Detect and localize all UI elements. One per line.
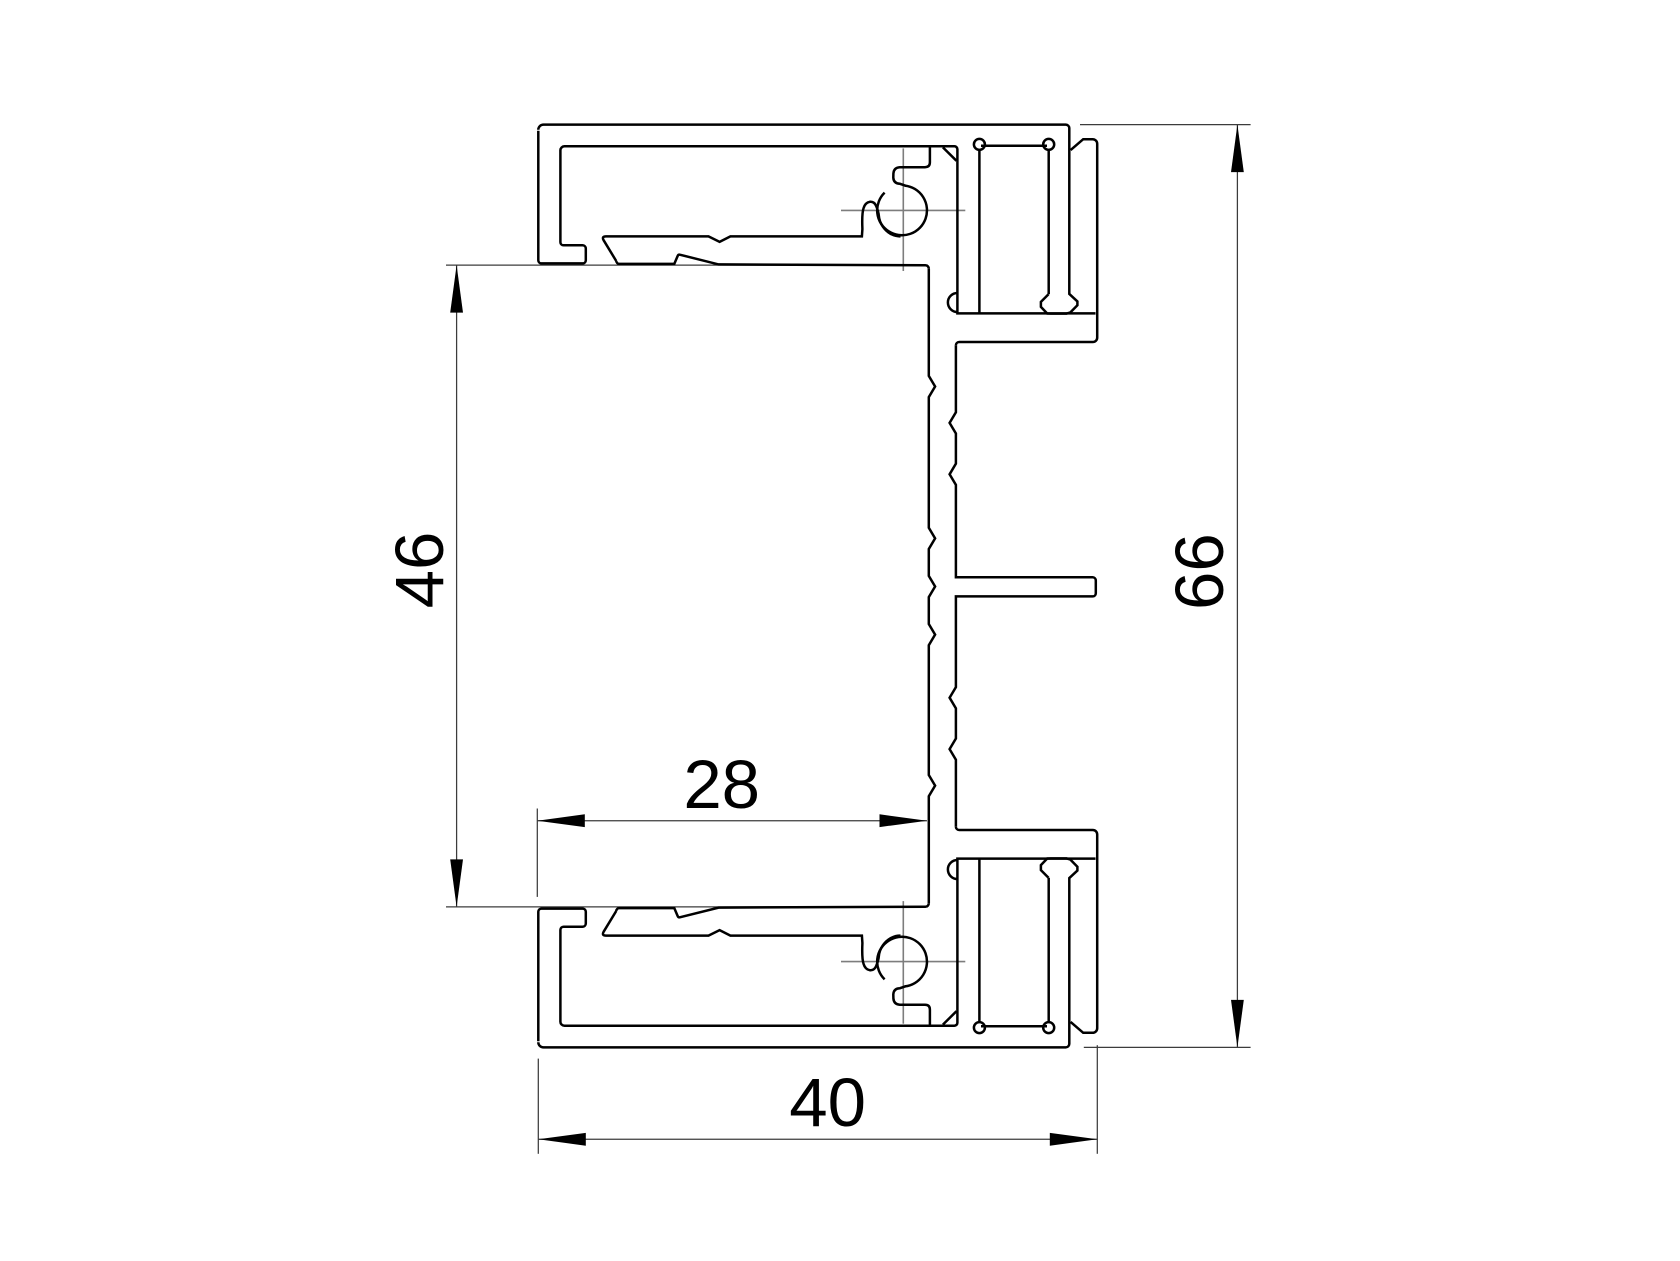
svg-text:66: 66	[1161, 533, 1238, 610]
svg-text:28: 28	[683, 746, 760, 823]
svg-text:46: 46	[381, 532, 458, 609]
svg-text:40: 40	[789, 1064, 866, 1141]
